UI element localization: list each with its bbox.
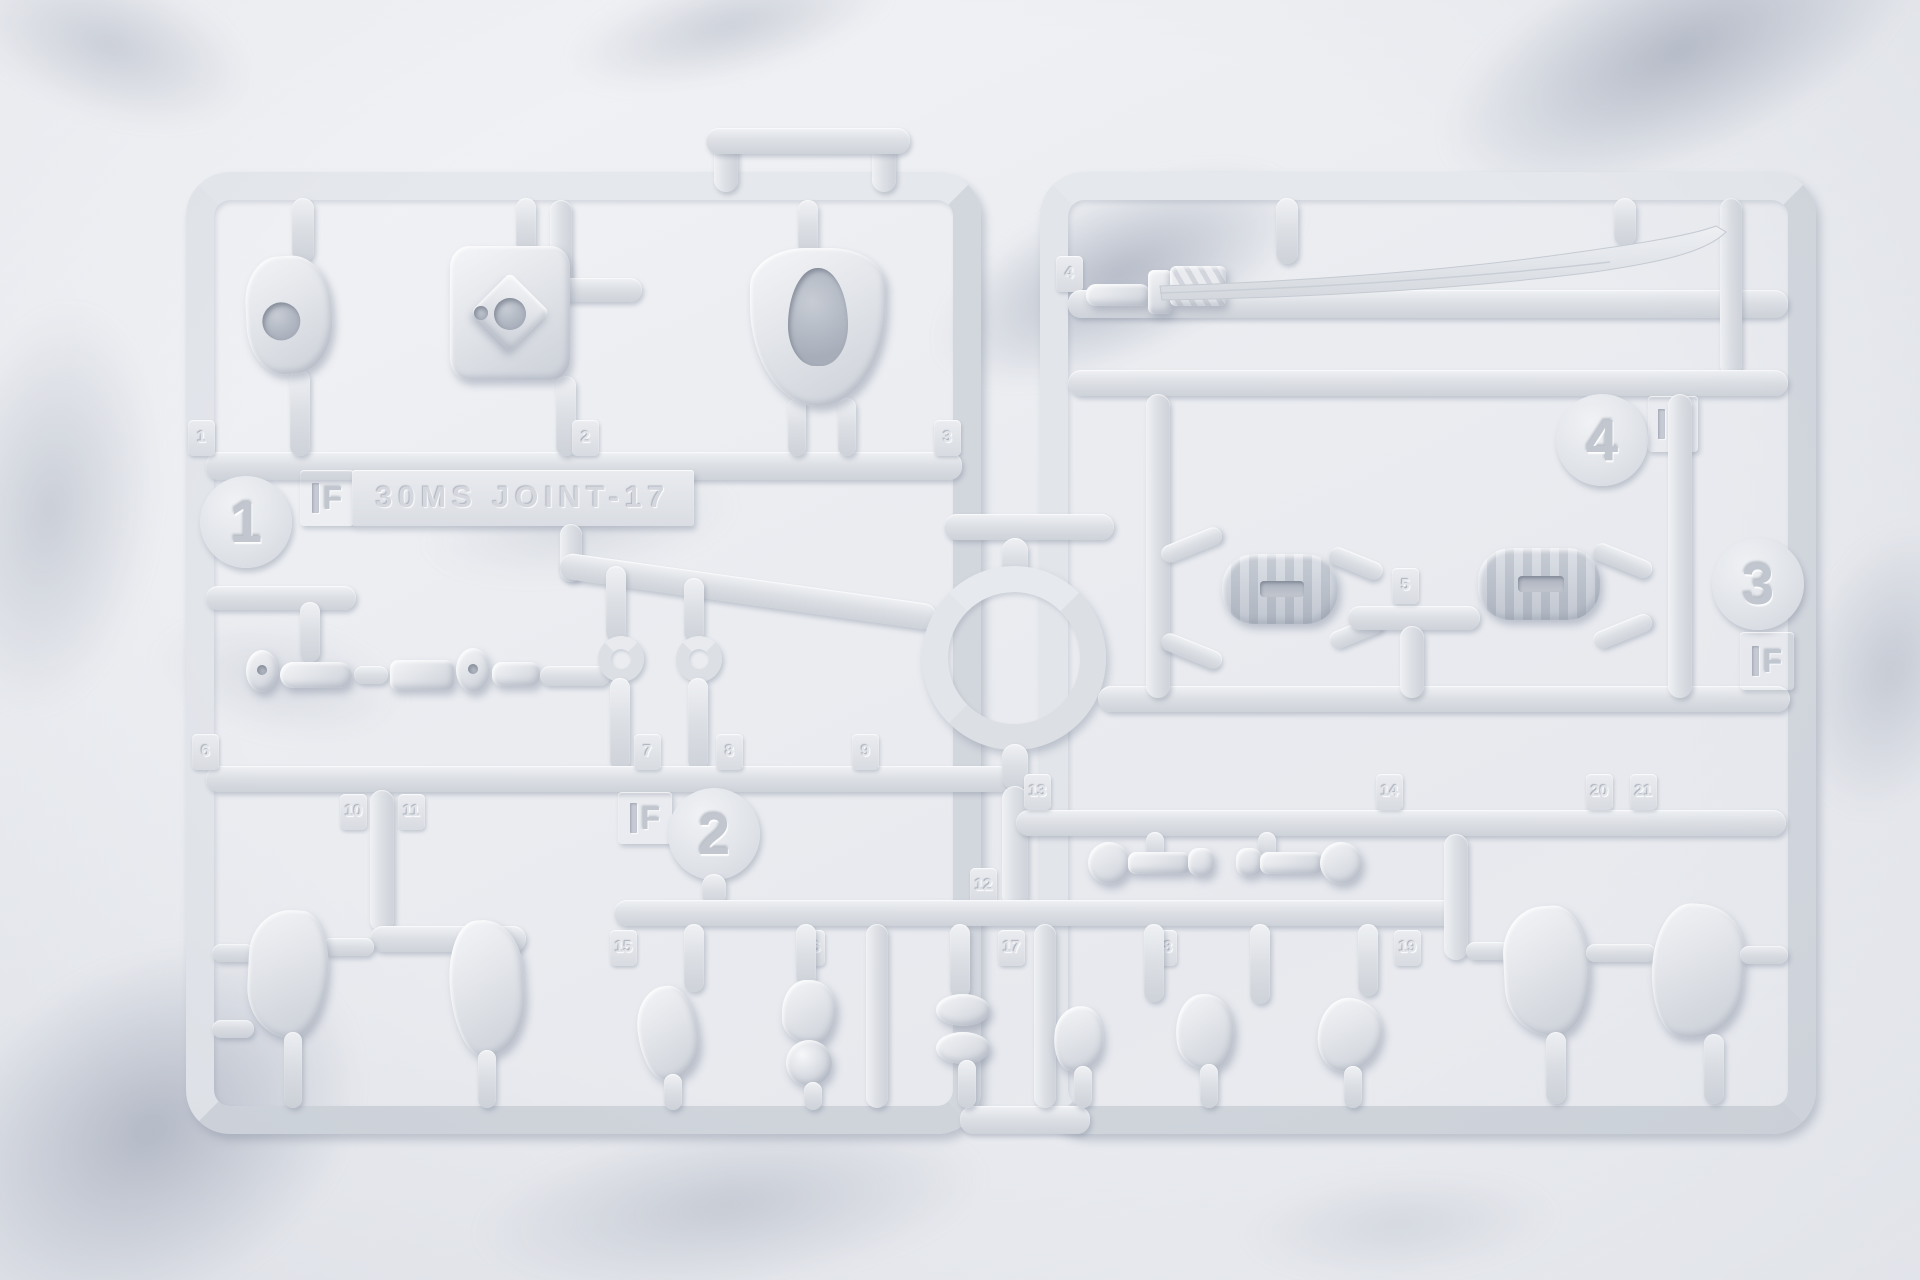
part-ribbed-joint xyxy=(1478,548,1600,620)
sprue-stub xyxy=(684,578,704,642)
part-eyelet-joint xyxy=(598,636,644,682)
part-tag-8: 8 xyxy=(716,734,743,770)
part-waist-armor xyxy=(243,254,335,376)
sprue-stub xyxy=(322,938,374,956)
gate-letter-tab: F xyxy=(300,470,354,526)
stencil-bar xyxy=(1752,646,1759,676)
sprue-stub xyxy=(212,1020,254,1038)
rail-vert-left xyxy=(370,790,394,932)
part-joint-disc xyxy=(456,648,490,692)
runner-label-plate: 30MS JOINT-17 xyxy=(352,470,694,526)
marble-vein xyxy=(0,287,188,734)
part-tag-1: 1 xyxy=(188,420,215,456)
section-marker-3: 3 xyxy=(1712,538,1804,630)
sprue-stub xyxy=(1144,924,1164,1002)
sprue-runner-photo: 1 2 3 F 30MS JOINT-17 1 6 7 8 9 F 2 12 1… xyxy=(0,0,1920,1280)
section-marker-1: 1 xyxy=(200,476,292,568)
part-ribbed-joint xyxy=(1222,554,1338,624)
part-tag-15: 15 xyxy=(610,930,637,966)
part-tag-6: 6 xyxy=(192,734,219,770)
sprue-stub xyxy=(1358,924,1378,996)
sprue-stub xyxy=(354,666,388,684)
sprue-stub xyxy=(684,924,704,992)
sprue-stub xyxy=(1034,924,1056,1108)
section-marker-2: 2 xyxy=(668,788,760,880)
part-tag-17: 17 xyxy=(998,930,1025,966)
sprue-stub xyxy=(284,1032,302,1108)
rail-vert-right xyxy=(1668,394,1692,698)
marble-vein xyxy=(0,0,276,163)
sprue-stub xyxy=(1704,1034,1724,1104)
part-eyelet-joint xyxy=(676,636,722,682)
part-hole-small xyxy=(257,665,267,675)
part-washer xyxy=(936,1032,990,1064)
ring-top-rail xyxy=(944,514,1114,540)
part-tag-13: 13 xyxy=(1024,774,1051,810)
sprue-stub xyxy=(1344,1066,1362,1108)
joint-slot xyxy=(1518,576,1564,592)
part-tag-3: 3 xyxy=(934,420,961,456)
part-joint-disc xyxy=(246,650,278,692)
top-handle-rail xyxy=(706,128,910,154)
sprue-stub xyxy=(610,678,630,770)
sprue-stub xyxy=(688,678,708,770)
sprue-stub xyxy=(788,398,806,456)
sprue-stub xyxy=(516,198,536,252)
part-tag-12: 12 xyxy=(970,868,997,904)
rail-row-right2 xyxy=(1068,370,1788,396)
part-ball-joint xyxy=(1088,842,1130,884)
rail-row2 xyxy=(206,766,1012,792)
marble-vein xyxy=(1237,1159,1564,1280)
rail-row-right3 xyxy=(1016,810,1786,836)
part-joint-nub xyxy=(1188,848,1214,876)
stencil-bar xyxy=(312,483,319,513)
sprue-stub xyxy=(478,1050,496,1108)
bottom-rail-bridge xyxy=(960,1106,1090,1134)
sprue-stub xyxy=(606,566,626,642)
sprue-stub xyxy=(798,200,818,254)
sprue-stub xyxy=(950,924,970,998)
rail-vert-right2 xyxy=(1444,834,1468,960)
collar-opening xyxy=(788,268,848,366)
part-joint-cylinder xyxy=(390,660,454,690)
sprue-stub xyxy=(1400,626,1424,698)
part-tag-19: 19 xyxy=(1394,930,1421,966)
sprue-stub xyxy=(1740,946,1788,964)
part-tag-10: 10 xyxy=(340,794,367,830)
part-tag-14: 14 xyxy=(1376,774,1403,810)
part-tag-5: 5 xyxy=(1392,568,1419,604)
part-hole xyxy=(261,301,301,341)
gate-letter-tab: F xyxy=(618,792,672,844)
part-hole-small xyxy=(474,306,488,320)
part-joint-nub xyxy=(1236,848,1262,876)
sprue-stub xyxy=(804,1082,822,1110)
part-joint-bar xyxy=(1260,852,1322,874)
part-tag-4: 4 xyxy=(1056,256,1083,292)
rail-row3 xyxy=(614,900,1460,926)
stencil-bar xyxy=(630,803,637,833)
sprue-stub xyxy=(958,1060,976,1108)
part-joint-pin xyxy=(492,662,540,686)
part-joint-bar xyxy=(1128,852,1190,874)
part-tag-11: 11 xyxy=(398,794,425,830)
sprue-stub xyxy=(290,370,310,456)
sprue-stub xyxy=(292,198,314,262)
sprue-stub xyxy=(1074,1066,1092,1108)
part-chest-armor xyxy=(450,246,570,380)
gate-letter: F xyxy=(323,480,343,517)
part-tag-7: 7 xyxy=(634,734,661,770)
sprue-stub xyxy=(1546,1032,1566,1104)
part-hole xyxy=(494,298,526,330)
sprue-stub xyxy=(796,924,816,986)
part-sword-blade xyxy=(1150,224,1750,324)
part-washer xyxy=(936,994,990,1026)
section-marker-4: 4 xyxy=(1556,394,1648,486)
part-tag-2: 2 xyxy=(572,420,599,456)
sprue-stub xyxy=(1200,1064,1218,1108)
sprue-stub xyxy=(300,602,320,662)
sword-grip xyxy=(1086,284,1150,306)
ring-runner xyxy=(922,566,1106,750)
part-tag-20: 20 xyxy=(1586,774,1613,810)
marble-vein xyxy=(552,0,909,119)
rail-mid-left xyxy=(206,586,356,610)
gate-letter-tab: F xyxy=(1740,632,1794,690)
part-hole-small xyxy=(468,664,478,674)
sprue-stub xyxy=(838,398,856,456)
sprue-stub xyxy=(664,1074,682,1110)
part-tag-9: 9 xyxy=(852,734,879,770)
sprue-stub xyxy=(866,924,888,1108)
gate-letter: F xyxy=(641,800,661,837)
part-head-cowl xyxy=(782,980,836,1044)
part-ball-joint xyxy=(1320,842,1362,884)
part-head-ball xyxy=(786,1040,832,1086)
gate-letter: F xyxy=(1763,643,1783,680)
part-tag-21: 21 xyxy=(1630,774,1657,810)
stencil-bar xyxy=(1658,409,1665,439)
sprue-stub xyxy=(1586,944,1656,962)
part-joint-cylinder xyxy=(280,662,352,688)
joint-slot xyxy=(1260,581,1304,597)
sprue-stub xyxy=(1250,924,1270,1004)
